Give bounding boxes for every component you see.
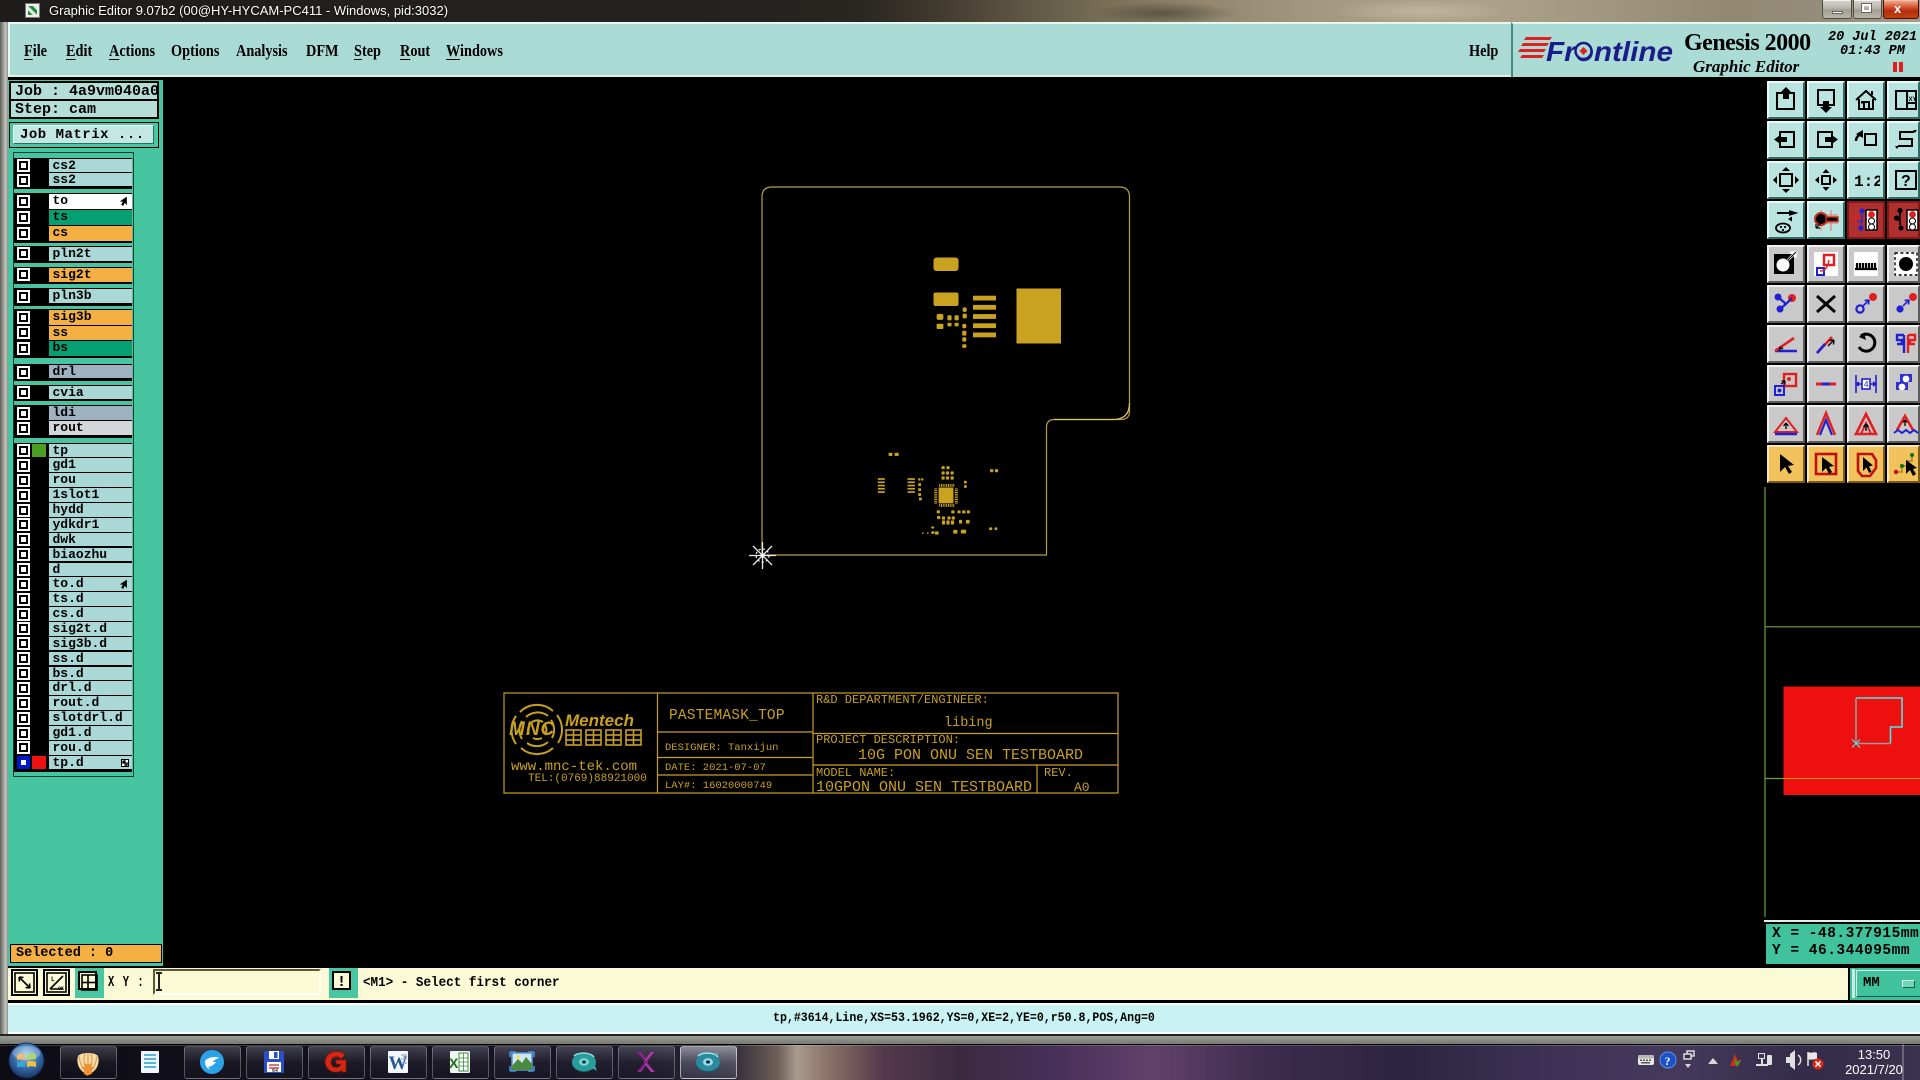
svg-text:libing: libing [944,716,993,731]
svg-text:PROJECT DESCRIPTION:: PROJECT DESCRIPTION: [816,733,960,747]
svg-text:OK: OK [58,986,64,992]
svg-text:?: ? [1901,173,1911,190]
svg-text:A0: A0 [1074,780,1090,795]
svg-text:L: L [51,976,55,983]
svg-text:MNC: MNC [509,719,555,740]
svg-text:1:2: 1:2 [1854,173,1880,191]
svg-text:XY: XY [1909,97,1917,103]
svg-text:REV.: REV. [1044,766,1073,780]
svg-text:TEL:(0769)88921000: TEL:(0769)88921000 [528,773,647,785]
svg-text:PASTEMASK_TOP: PASTEMASK_TOP [669,708,785,724]
svg-text:DATE: 2021-07-07: DATE: 2021-07-07 [665,762,766,774]
svg-text:Mentech: Mentech [565,711,634,730]
svg-text:10GPON ONU SEN TESTBOARD: 10GPON ONU SEN TESTBOARD [816,779,1032,796]
svg-text:?: ? [1665,1054,1671,1068]
svg-text:LAY#: 16020000749: LAY#: 16020000749 [665,780,772,792]
svg-text:4: 4 [1864,380,1869,389]
svg-text:X: X [449,1055,459,1071]
svg-text:MODEL NAME:: MODEL NAME: [816,766,895,780]
svg-text:64: 64 [272,1068,278,1074]
svg-text:10G PON ONU SEN TESTBOARD: 10G PON ONU SEN TESTBOARD [858,747,1083,764]
svg-text:R&D DEPARTMENT/ENGINEER:: R&D DEPARTMENT/ENGINEER: [816,693,989,707]
svg-text:DESIGNER: Tanxijun: DESIGNER: Tanxijun [665,742,778,754]
svg-text:Frontline: Frontline [1546,36,1673,67]
